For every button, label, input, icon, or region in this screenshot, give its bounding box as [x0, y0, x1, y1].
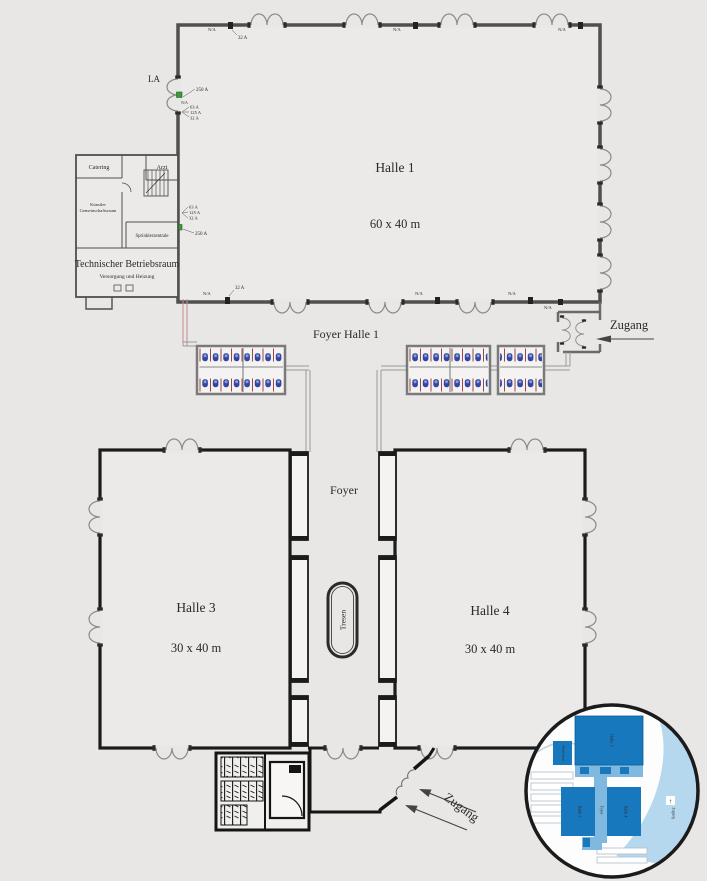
bottom-entrance	[310, 748, 434, 812]
halle-1-dimensions: 60 x 40 m	[370, 217, 421, 231]
amp-label: 63 A	[189, 205, 198, 210]
amp-label: 250 A	[196, 88, 208, 93]
inset-halle-4-label: Halle 4	[624, 806, 629, 818]
technik-label: Technischer Betriebsraum	[75, 259, 180, 270]
connection-box-icon	[225, 297, 230, 304]
tresen-label: Tresen	[339, 610, 348, 630]
na-marker: N/A	[415, 291, 424, 296]
na-marker: N/A	[544, 305, 553, 310]
halle-1-label: Halle 1	[375, 160, 414, 175]
halle-1: Halle 1 60 x 40 m LA	[148, 14, 611, 313]
sprinkler-label: Sprinklerzentrale	[135, 234, 168, 239]
double-door-icon	[597, 145, 611, 184]
connection-box-icon	[228, 22, 233, 29]
bottom-toilet-block	[216, 753, 309, 830]
kuenstler-label: Künstler	[90, 202, 106, 207]
double-door-icon	[323, 745, 362, 759]
connection-box-icon	[413, 22, 418, 29]
na-marker: N/A	[508, 291, 517, 296]
connection-box-icon	[528, 297, 533, 304]
technik-sublabel: Versorgung und Heizung	[100, 274, 155, 280]
annex-building: Catering Arzt Künstler Gemeinschaftsraum…	[75, 155, 180, 309]
toilet-block-middle	[407, 346, 490, 394]
double-door-icon	[576, 319, 586, 348]
floorplan-svg: Halle 1 60 x 40 m LA N/A 32 A N/A N/A N/…	[0, 0, 707, 881]
halle-4-dimensions: 30 x 40 m	[465, 642, 516, 656]
inset-arrow-icon: ↑	[669, 799, 673, 806]
inset-halle-3-label: Halle 3	[578, 806, 583, 818]
inset-zugang-label: Zugang	[672, 808, 676, 820]
double-door-icon	[582, 607, 596, 646]
halle-3-dimensions: 30 x 40 m	[171, 641, 222, 655]
foyer-halle1-label: Foyer Halle 1	[313, 327, 379, 341]
kuenstler-label-2: Gemeinschaftsraum	[80, 208, 117, 213]
double-door-icon	[89, 497, 103, 536]
na-marker: N/A	[181, 100, 188, 105]
foyer-connector-left	[183, 299, 197, 346]
halle-4-label: Halle 4	[470, 603, 510, 618]
amp-label: 32 A	[190, 116, 199, 121]
amp-label: 125 A	[190, 110, 202, 115]
amp-label: 125 A	[189, 210, 201, 215]
arzt-label: Arzt	[157, 165, 168, 171]
double-door-icon	[365, 299, 404, 313]
amp-label: 32 A	[238, 36, 248, 41]
amp-label: 250 A	[195, 232, 207, 237]
double-door-icon	[437, 14, 476, 28]
amp-label: 32 A	[235, 286, 245, 291]
entrance-arrow-icon	[596, 336, 654, 343]
amp-label: 63 A	[190, 105, 199, 110]
connection-box-icon	[578, 22, 583, 29]
na-marker: N/A	[208, 27, 217, 32]
double-door-icon	[417, 745, 456, 759]
double-door-icon	[560, 315, 570, 344]
toilet-block-left	[197, 346, 285, 394]
double-door-icon	[507, 439, 546, 453]
foyer-label: Foyer	[330, 483, 358, 497]
double-door-icon	[597, 85, 611, 124]
connection-box-icon	[435, 297, 440, 304]
annex-porch	[86, 297, 112, 309]
catering-label: Catering	[89, 165, 110, 171]
double-door-icon	[152, 745, 191, 759]
double-door-icon	[342, 14, 381, 28]
na-marker: N/A	[558, 27, 567, 32]
inset-foyer-label: Foyer	[600, 806, 604, 815]
entrance-vestibule	[558, 302, 600, 352]
double-door-icon	[597, 253, 611, 292]
connection-box-icon	[558, 299, 563, 305]
floorplan-canvas: Halle 1 60 x 40 m LA N/A 32 A N/A N/A N/…	[0, 0, 707, 881]
double-door-icon	[270, 299, 309, 313]
halle-3-label: Halle 3	[176, 600, 216, 615]
toilet-block-small	[498, 346, 544, 394]
na-marker: N/A	[203, 291, 212, 296]
double-door-icon	[247, 14, 286, 28]
tresen-counter: Tresen	[328, 583, 357, 657]
halle-3: Halle 3 30 x 40 m	[100, 450, 290, 748]
double-door-icon	[162, 439, 201, 453]
na-marker: N/A	[393, 27, 402, 32]
zugang-top-label: Zugang	[610, 318, 649, 332]
double-door-icon	[89, 607, 103, 646]
double-door-icon	[532, 14, 571, 28]
zugang-bottom-label: Zugang	[441, 789, 482, 825]
double-door-icon	[582, 497, 596, 536]
inset-halle-1	[575, 716, 643, 765]
amp-label: 32 A	[189, 216, 198, 221]
inset-halle-1-label: Halle 1	[610, 734, 615, 747]
folding-door-icon	[396, 770, 414, 795]
double-door-icon	[597, 202, 611, 241]
double-door-icon	[455, 299, 494, 313]
la-label: LA	[148, 74, 160, 84]
inset-betriebsraum-label: Betriebsraum	[562, 745, 566, 762]
power-connection-icon	[177, 92, 183, 98]
halle-4: Halle 4 30 x 40 m	[395, 450, 585, 748]
